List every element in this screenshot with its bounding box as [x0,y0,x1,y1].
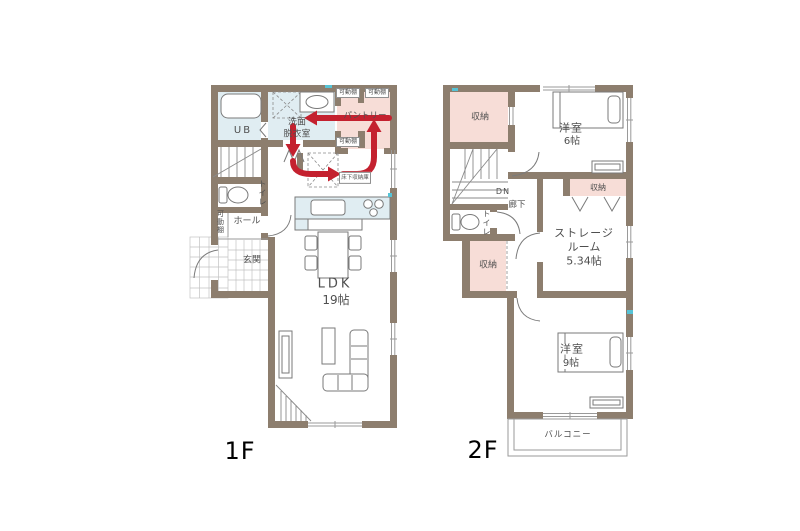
movable-shelf-label-1: 可動棚 [336,88,360,98]
bedroom9-label-line1: 洋室 [560,344,584,355]
balcony-label: バルコニー [544,431,591,440]
entrance-label: 玄関 [243,257,261,266]
pantry-label: パントリー [344,112,387,121]
desk-icon-9j [590,397,623,408]
washroom-label-line1: 洗面 [288,119,306,128]
bathtub-icon [221,94,261,118]
closet-label-left: 収納 [479,262,497,271]
ub-label: UB [234,126,252,136]
movable-shelf-label-3: 可動棚 [336,137,360,147]
side-table-icon [322,328,335,364]
floor2-label: 2F [467,438,498,462]
bedroom6-label-line1: 洋室 [559,123,583,134]
floorplan-canvas: UB 洗面 脱衣室 パントリー 可動棚 可動棚 可動棚 可動棚 トイレ ホール … [0,0,800,531]
bedroom6-label-line2: 6帖 [564,137,580,147]
staircase-1f [213,147,261,177]
bedroom9-label-line2: 9帖 [563,359,579,369]
closet-label-topleft: 収納 [471,114,489,123]
hanger-pipe-icon [572,197,620,211]
floor1-label: 1F [224,439,255,463]
storage-room-label-line3: 5.34帖 [566,256,602,267]
floor-hatch-lines [276,385,311,421]
movable-shelf-label-2: 可動棚 [365,88,389,98]
floorplan-drawing [0,0,800,531]
underfloor-storage-label: 床下収納庫 [339,172,371,184]
toilet-icon-2f [452,214,479,230]
desk-icon-6j [592,161,623,173]
washroom-label-line2: 脱衣室 [283,131,310,140]
toilet-icon-1f [219,187,248,203]
closet-label-right: 収納 [590,184,606,192]
ldk-label-line1: LDK [318,278,353,291]
dining-table-icon [305,232,361,278]
toilet-label-1f: トイレ [258,180,266,207]
down-label: DN [496,188,510,196]
storage-room-label-line1: ストレージ [554,228,614,239]
hall-label: ホール [233,218,260,227]
floor2-plan [443,85,633,456]
kitchen-counter-icon [295,197,390,230]
tv-board-icon [279,331,292,378]
entrance-tile-grid [190,237,268,298]
kitchen-sink-icon [311,200,345,215]
movable-shelf-label-hall: 可動棚 [217,210,224,234]
toilet-label-2f: トイレ [482,210,490,237]
vanity-sink-icon [300,92,334,112]
ldk-label-line2: 19帖 [322,294,349,306]
storage-room-label-line2: ルーム [568,242,601,253]
corridor-label: 廊下 [508,201,525,210]
